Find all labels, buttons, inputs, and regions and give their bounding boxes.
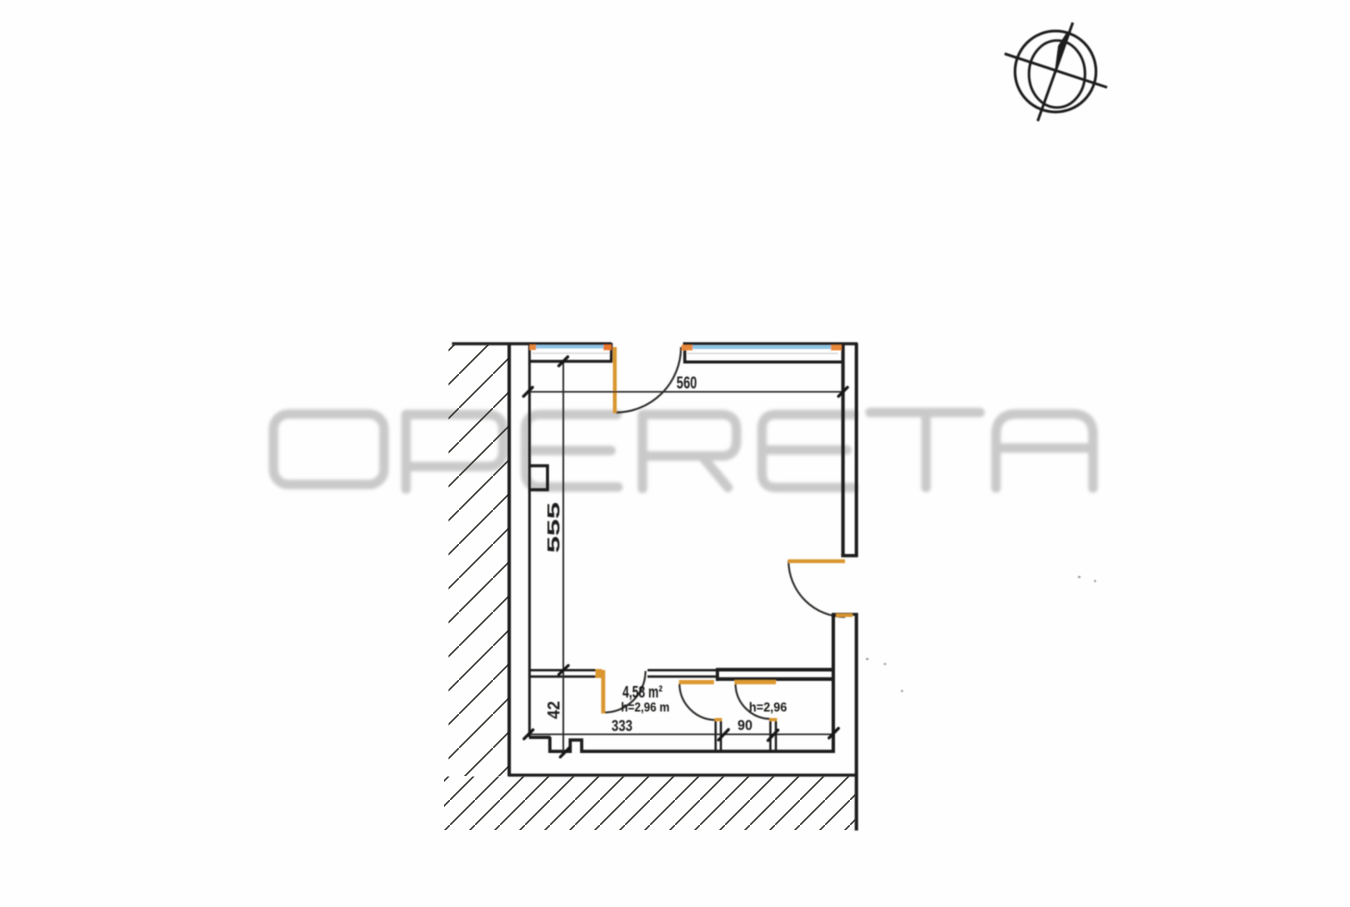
- svg-text:h=2,96: h=2,96: [749, 701, 787, 715]
- svg-text:h=2,96 m: h=2,96 m: [621, 701, 670, 715]
- svg-text:42: 42: [544, 701, 564, 719]
- svg-text:90: 90: [738, 717, 753, 734]
- svg-text:555: 555: [544, 502, 564, 553]
- svg-text:560: 560: [677, 373, 698, 393]
- svg-text:4,58 m²: 4,58 m²: [623, 684, 663, 702]
- svg-text:333: 333: [612, 718, 633, 735]
